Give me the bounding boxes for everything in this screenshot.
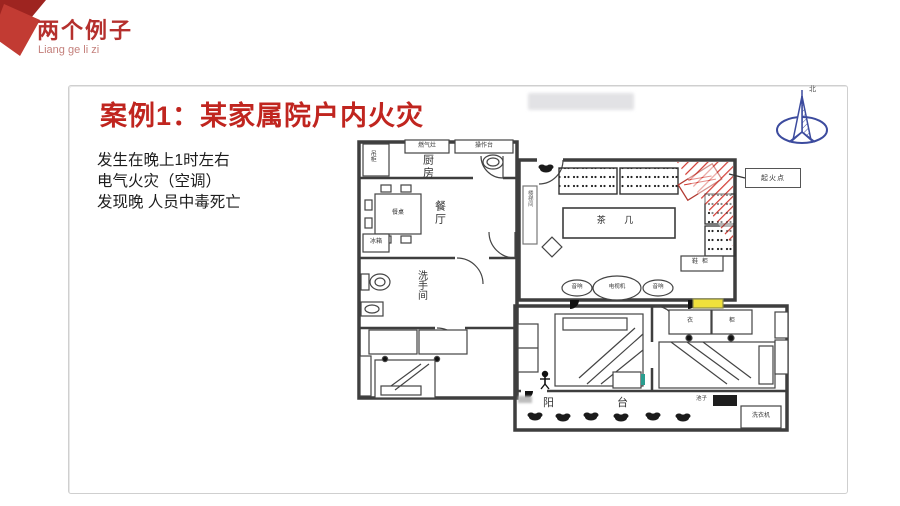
north-compass: 北: [773, 84, 835, 158]
case-description: 发生在晚上1时左右 电气火灾（空调） 发现晚 人员中毒死亡: [97, 150, 241, 213]
page-subtitle: Liang ge li zi: [38, 44, 99, 56]
bathroom-label: 洗手间: [415, 270, 426, 300]
yellow-highlight-item: [693, 299, 723, 308]
fire-origin-label: 起火点: [761, 173, 785, 183]
bedroom2-furniture: [518, 314, 645, 389]
bathroom-fixtures: [361, 274, 390, 316]
north-label: 北: [809, 84, 816, 94]
washing-machine-label: 洗衣机: [741, 413, 781, 419]
basin-shape: [713, 395, 737, 406]
compass-icon: [773, 84, 835, 158]
slide-canvas: 两个例子 Liang ge li zi 案例1：某家属院户内火灾 发生在晚上1时…: [0, 0, 900, 506]
entry-plant: [539, 165, 554, 173]
speaker-right-label: 音响: [644, 285, 672, 291]
balcony-label: 阳 台: [543, 398, 658, 410]
counter-label: 操作台: [455, 143, 513, 149]
stool: [542, 237, 562, 257]
sofa-right: [620, 168, 678, 194]
fridge-label: 冰箱: [364, 239, 388, 245]
fire-origin-callout: 起火点: [745, 168, 801, 188]
case-line-2: 电气火灾（空调）: [97, 171, 241, 192]
gas-stove-label: 燃气灶: [405, 143, 449, 149]
kitchen-label: 厨房: [421, 154, 433, 180]
illegible-balcony-tag: [518, 396, 532, 403]
dining-label: 餐厅: [433, 200, 445, 226]
stairwell-label: 楼梯间: [526, 190, 532, 207]
bedroom3-furniture: [659, 299, 788, 388]
sofa-left: [559, 168, 617, 194]
person-figure: [540, 371, 550, 389]
page-title: 两个例子: [37, 13, 133, 45]
case-line-3: 发现晚 人员中毒死亡: [97, 192, 241, 213]
dining-table-label: 餐桌: [376, 210, 420, 216]
wardrobe-door-b-label: 柜: [712, 318, 752, 324]
entry-opening: [537, 156, 563, 164]
case-line-1: 发生在晚上1时左右: [97, 150, 241, 171]
wardrobe-door-a-label: 衣: [669, 318, 711, 324]
living-room-furniture: [539, 162, 746, 300]
shoe-cabinet-label: 鞋柜: [681, 259, 723, 265]
bedroom1-furniture: [360, 330, 467, 398]
basin-label: 池子: [696, 397, 707, 403]
speaker-left-label: 音响: [563, 285, 591, 291]
blurred-watermark: [528, 93, 634, 110]
tea-table-label: 茶 几: [563, 216, 675, 225]
hanging-cabinet-label: 吊柜: [369, 150, 375, 162]
tv-label: 电视机: [595, 285, 639, 291]
floorplan-figure: 吊柜 燃气灶 操作台 厨房 餐桌 餐厅 冰箱 洗手间 楼梯间 茶 几 电视机 音…: [355, 128, 805, 440]
